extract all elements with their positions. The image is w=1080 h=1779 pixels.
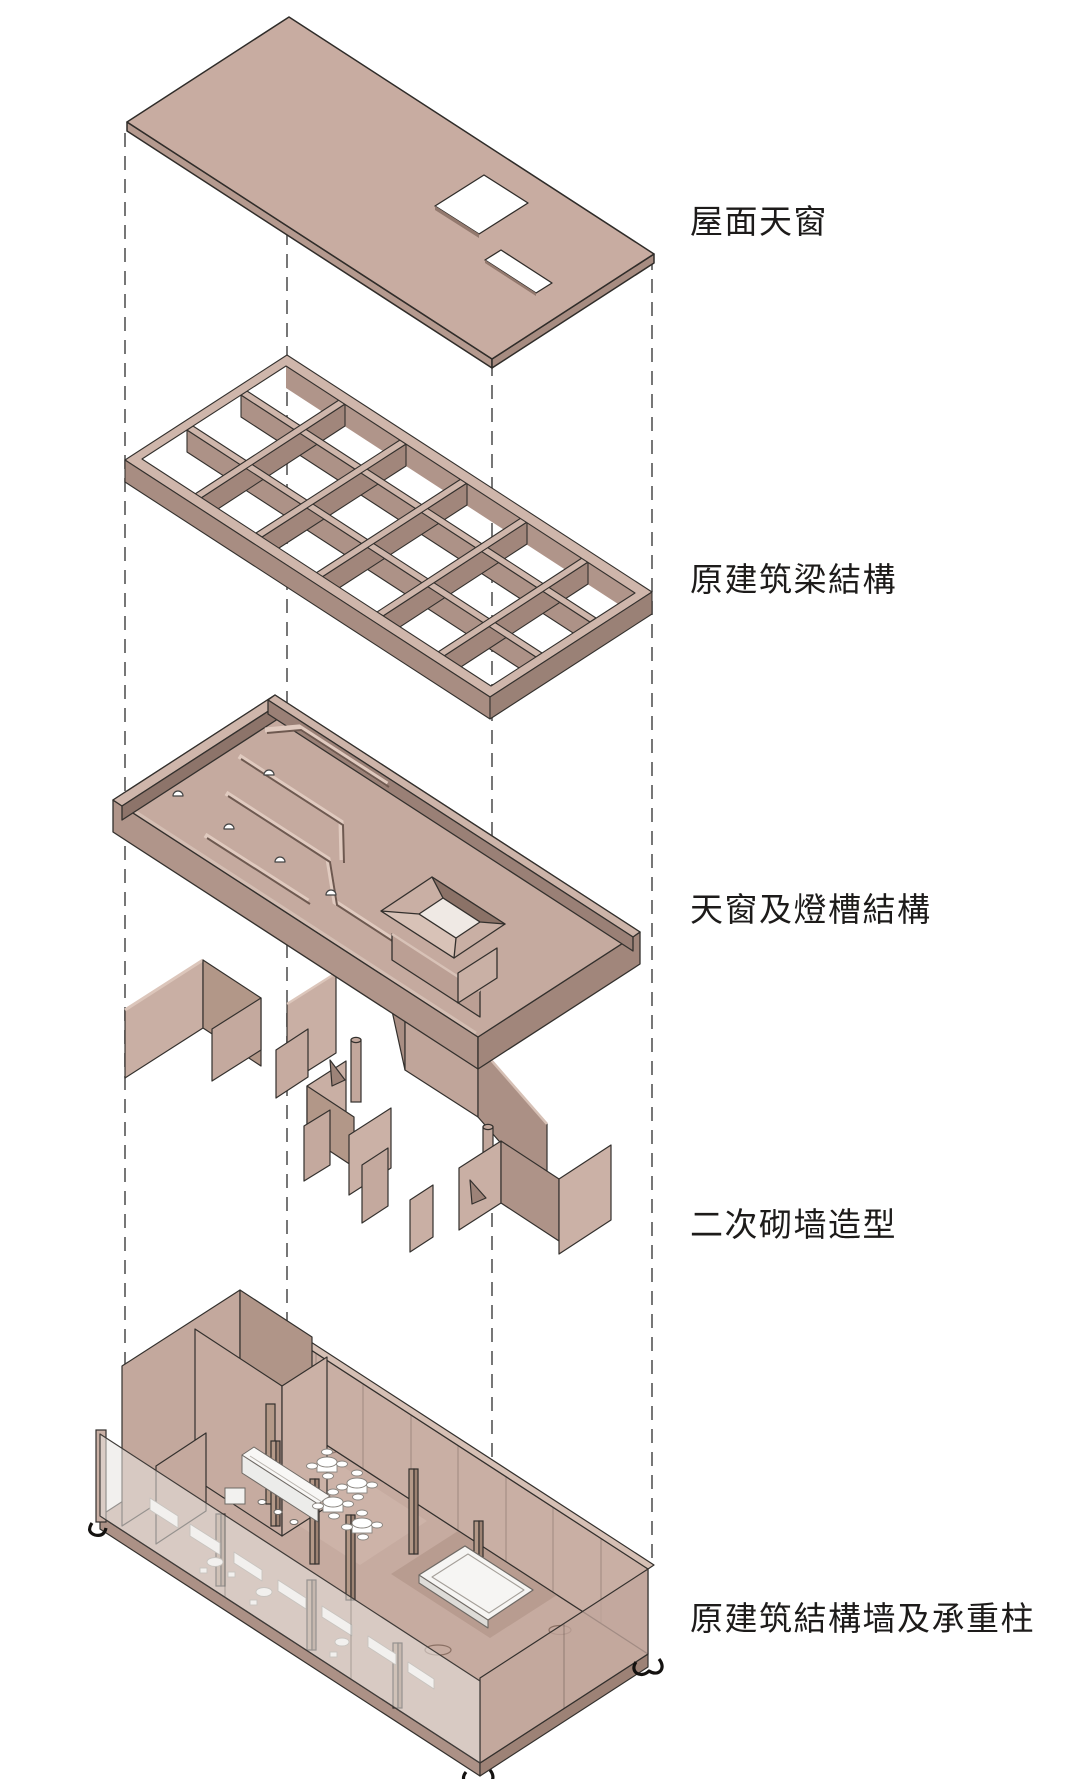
base-structure-layer [90, 1290, 662, 1779]
label-roof-skylight: 屋面天窗 [690, 195, 828, 243]
beam-structure-layer [125, 355, 652, 719]
label-skylight-light-trough: 天窗及燈槽結構 [690, 883, 932, 931]
roof-skylight-layer [127, 17, 654, 368]
wall-piece [459, 1141, 501, 1230]
wall-piece [276, 1029, 308, 1098]
label-original-walls-columns: 原建筑結構墙及承重柱 [690, 1592, 1035, 1640]
label-secondary-masonry-walls: 二次砌墙造型 [690, 1198, 897, 1246]
wall-piece [125, 960, 203, 1078]
exploded-axon-diagram: 屋面天窗 原建筑梁結構 天窗及燈槽結構 二次砌墙造型 原建筑結構墙及承重柱 [0, 0, 1080, 1779]
wall-piece [559, 1145, 611, 1254]
label-original-beam-structure: 原建筑梁結構 [690, 553, 897, 601]
wall-piece [410, 1185, 433, 1252]
